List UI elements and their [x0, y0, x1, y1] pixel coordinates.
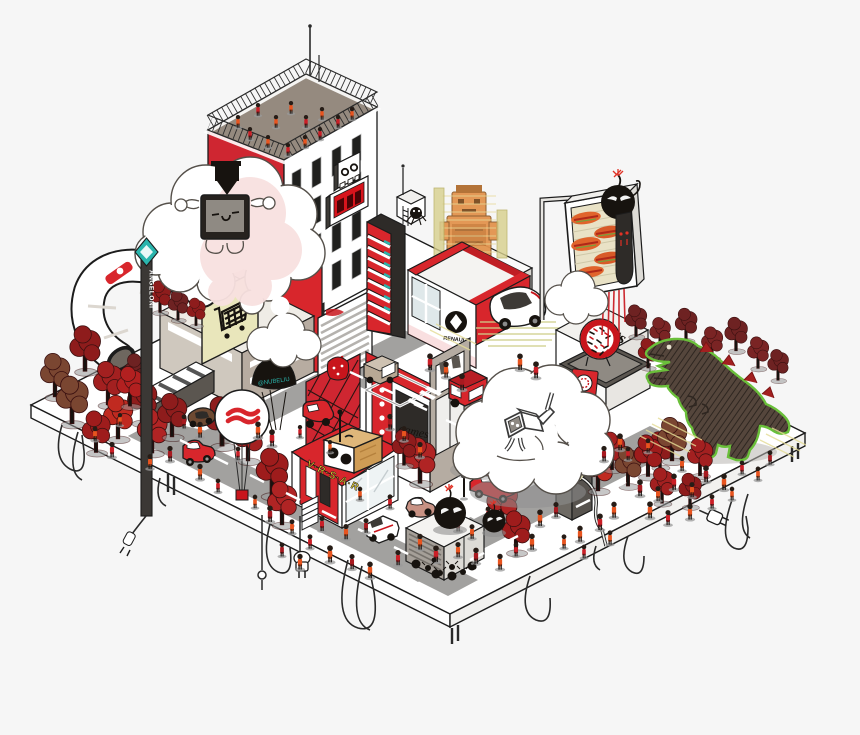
svg-text:ANGELONI: ANGELONI [148, 270, 155, 309]
